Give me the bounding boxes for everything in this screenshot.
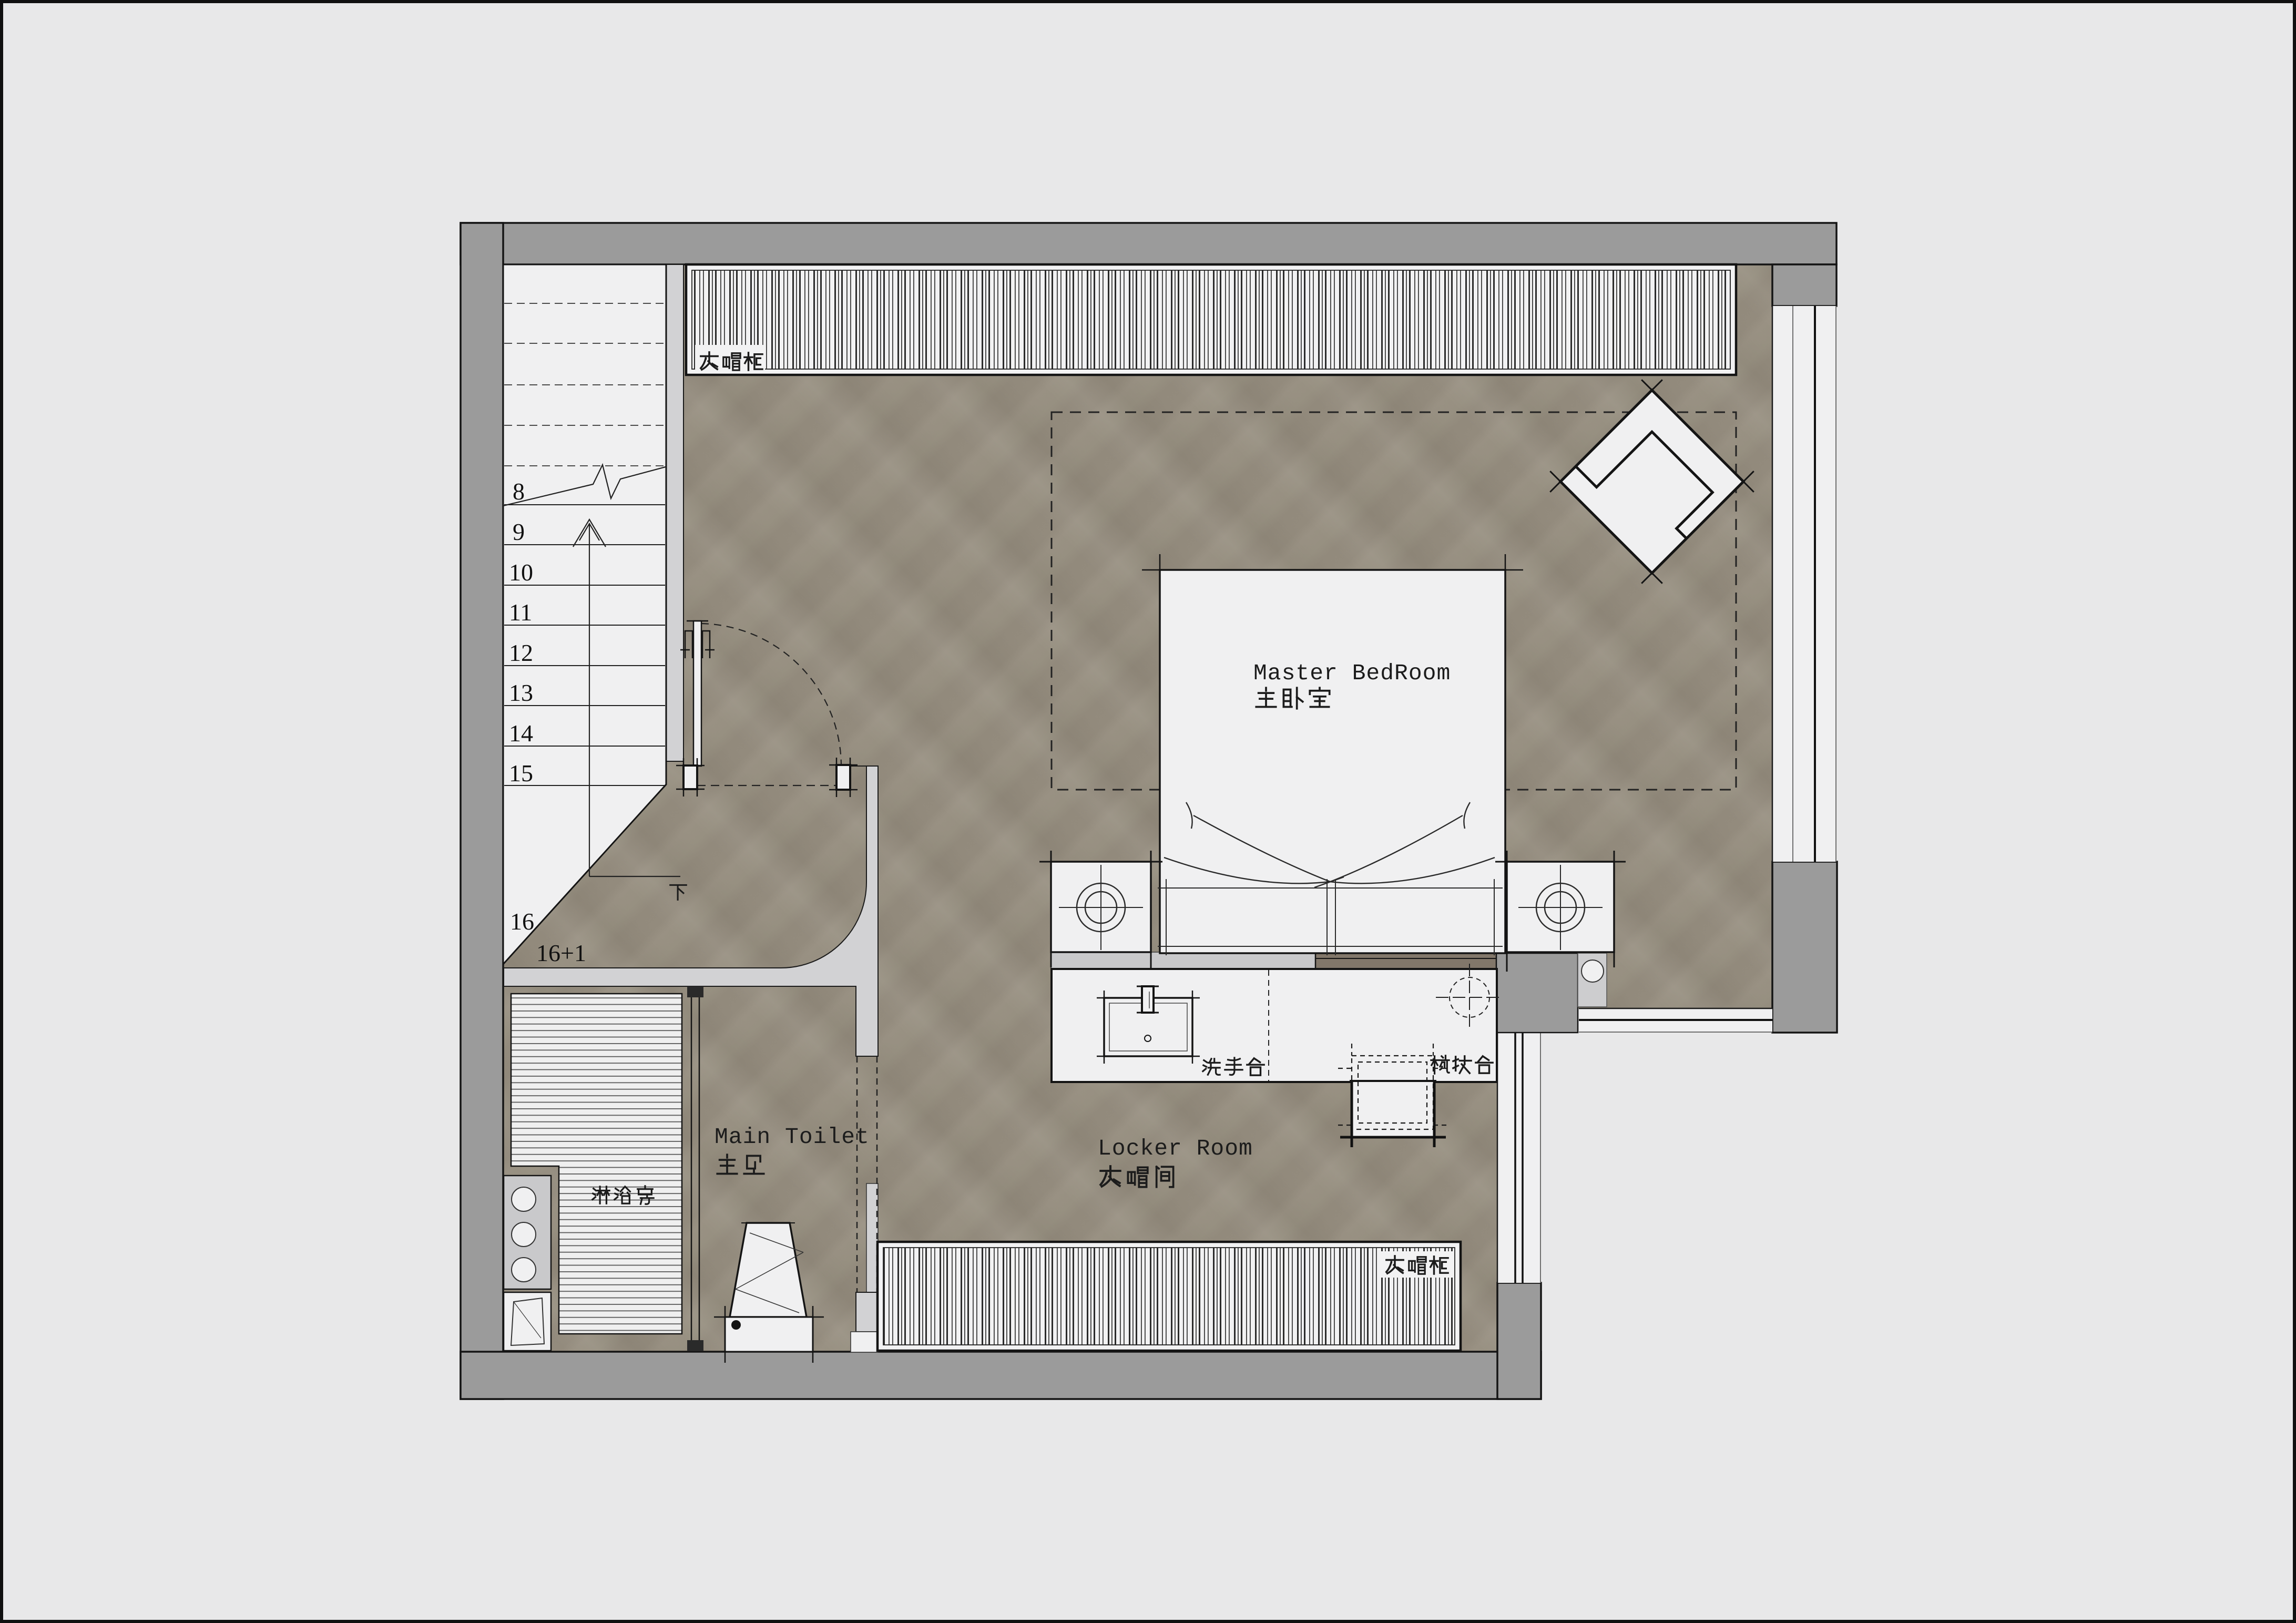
svg-text:15: 15 xyxy=(509,760,533,787)
svg-text:16: 16 xyxy=(510,908,534,935)
svg-text:14: 14 xyxy=(509,720,533,747)
svg-text:10: 10 xyxy=(509,559,533,586)
svg-text:8: 8 xyxy=(513,478,525,505)
svg-text:16+1: 16+1 xyxy=(536,940,586,966)
svg-text:13: 13 xyxy=(509,679,533,706)
svg-text:11: 11 xyxy=(509,599,532,626)
svg-text:9: 9 xyxy=(513,518,525,545)
svg-text:Main Toilet: Main Toilet xyxy=(715,1124,870,1150)
svg-text:12: 12 xyxy=(509,639,533,666)
svg-text:Locker Room: Locker Room xyxy=(1098,1136,1253,1161)
svg-text:Master BedRoom: Master BedRoom xyxy=(1253,660,1451,686)
